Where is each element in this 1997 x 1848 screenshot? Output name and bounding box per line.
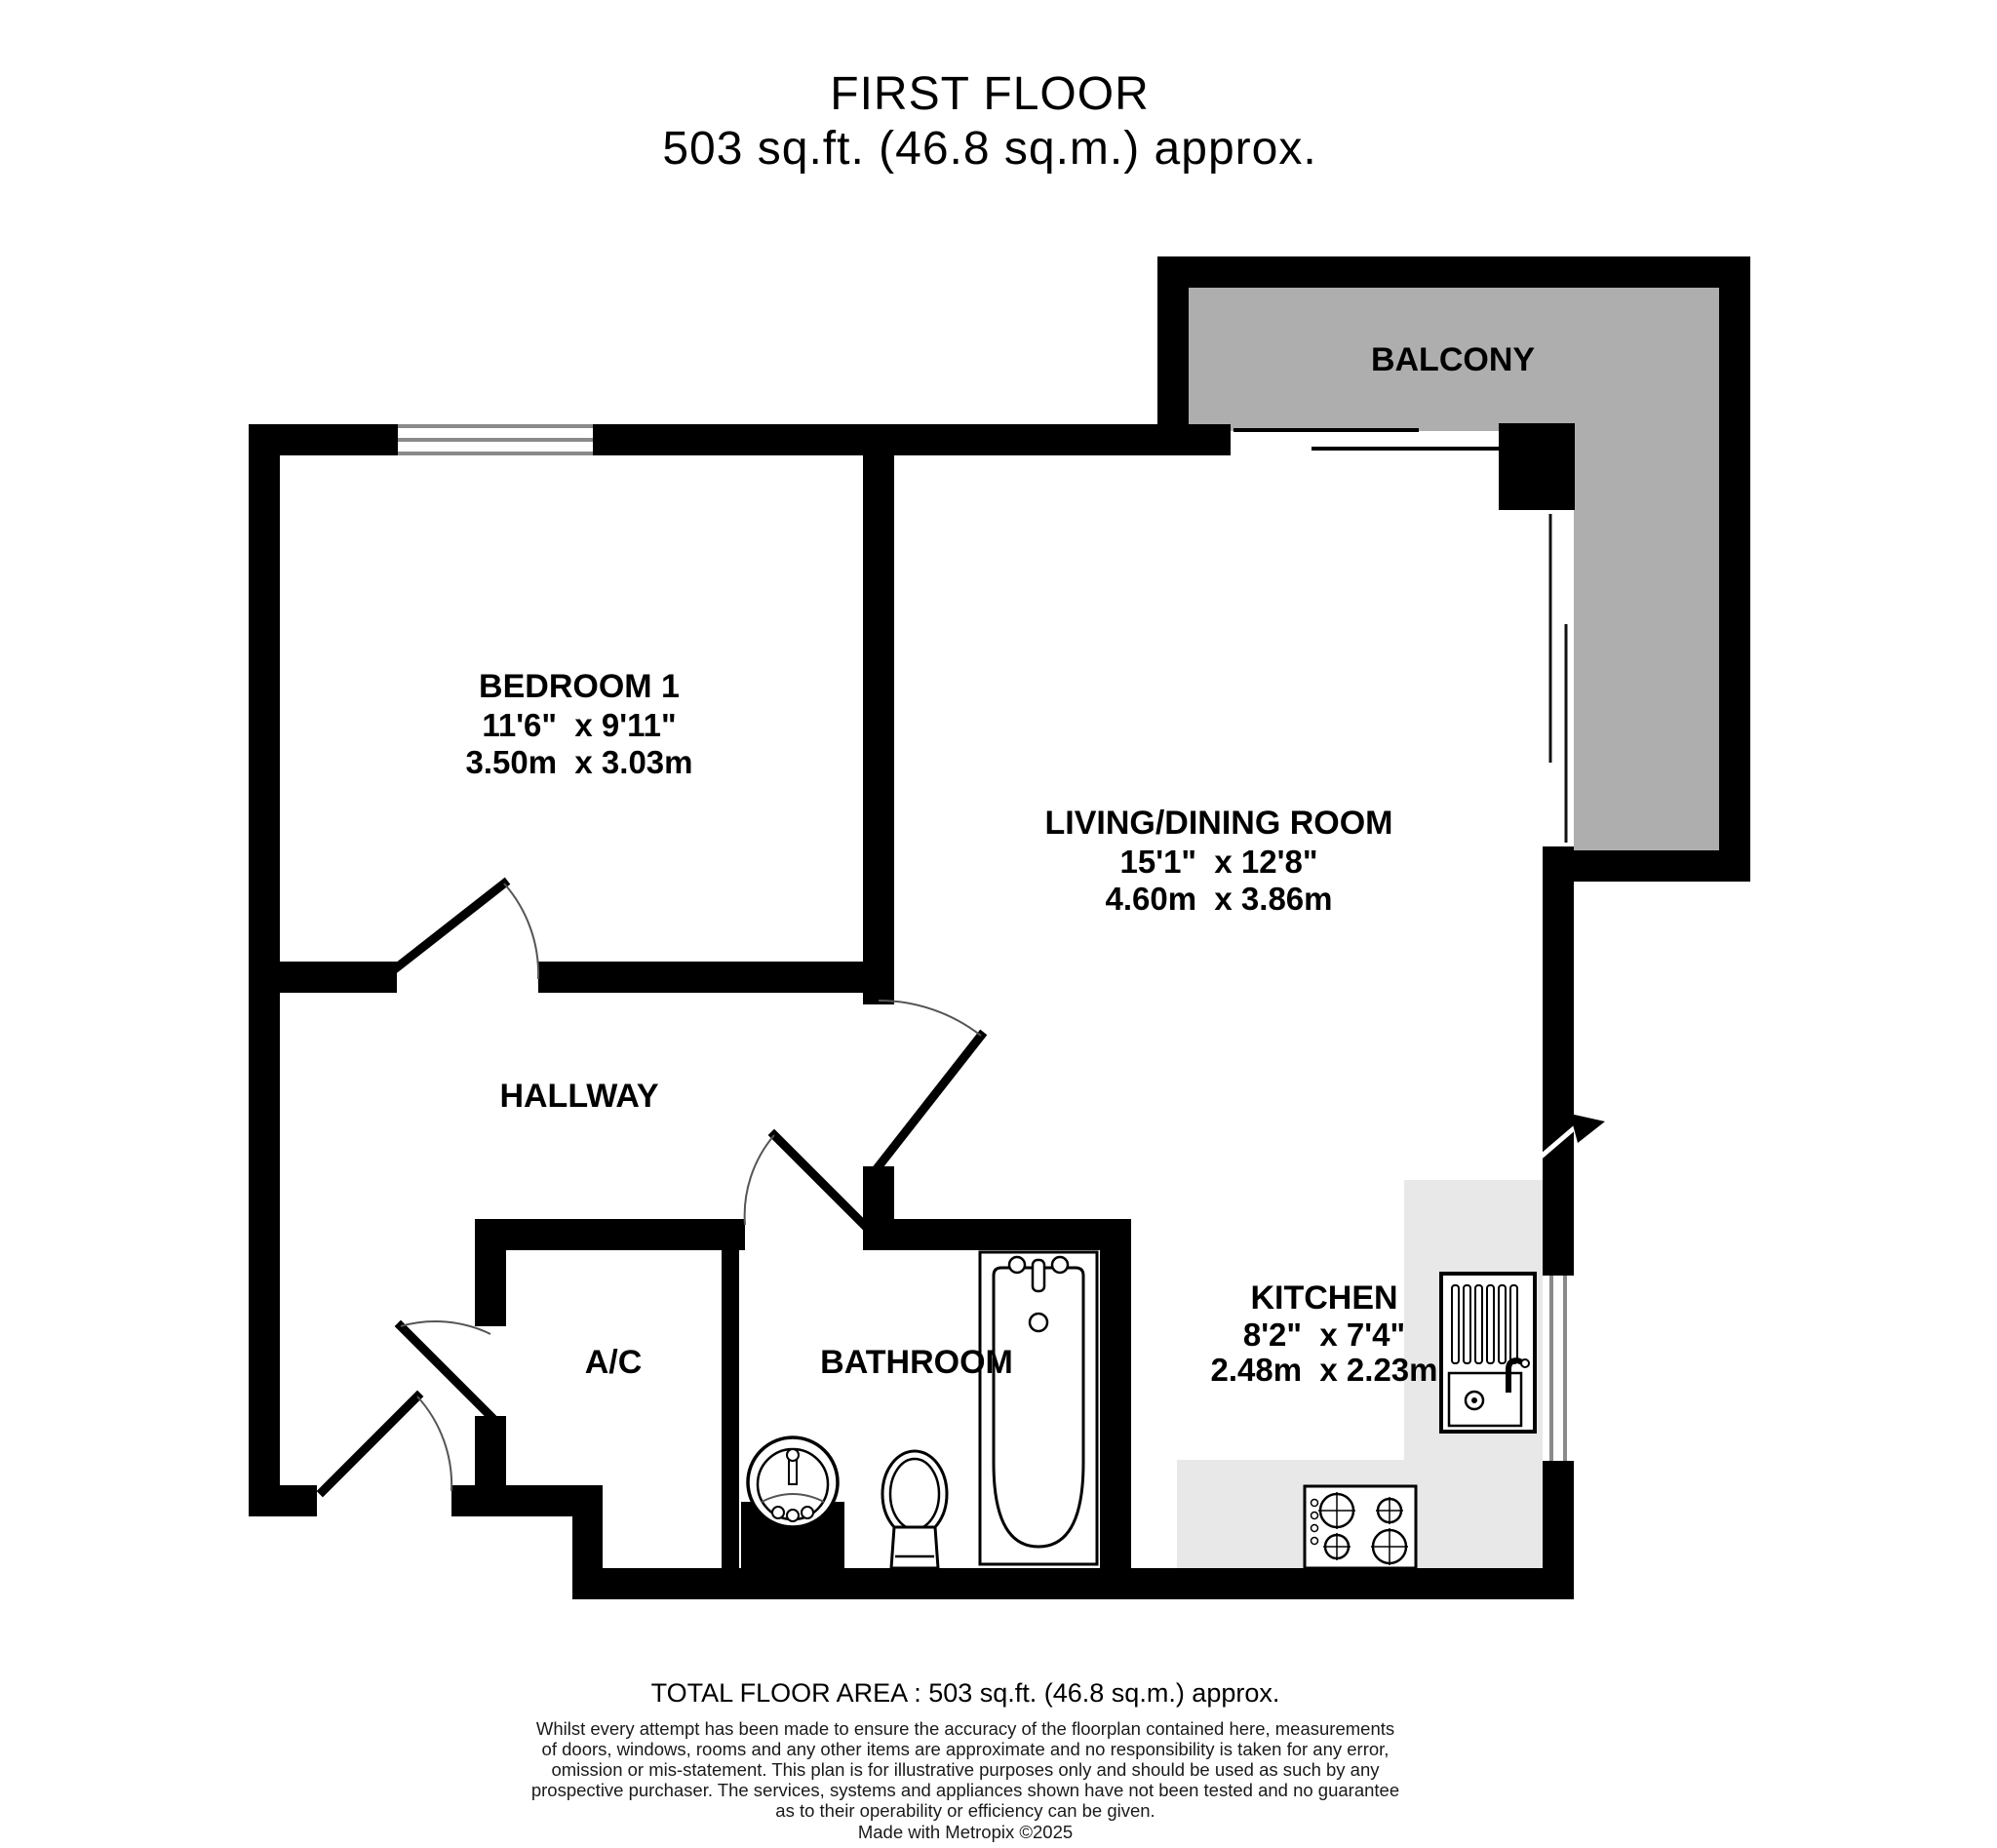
wall-top-left xyxy=(249,424,398,455)
metropix-credit: Made with Metropix ©2025 xyxy=(858,1822,1073,1842)
wall-bathroom-right xyxy=(1100,1219,1131,1568)
bathroom-door-icon xyxy=(745,1135,864,1225)
kitchen-dims-metric: 2.48m x 2.23m xyxy=(1211,1352,1438,1388)
footer: TOTAL FLOOR AREA : 503 sq.ft. (46.8 sq.m… xyxy=(531,1678,1399,1842)
wall-divider xyxy=(863,424,894,1004)
wall-bottom-main xyxy=(572,1568,1574,1599)
disclaimer-line-3: omission or mis-statement. This plan is … xyxy=(551,1759,1380,1780)
balcony-label: BALCONY xyxy=(1371,341,1535,378)
bedroom-window-icon xyxy=(398,424,593,455)
bathroom-label: BATHROOM xyxy=(820,1344,1013,1381)
wall-ac-left xyxy=(475,1250,506,1326)
living-room-dims-imperial: 15'1" x 12'8" xyxy=(1120,844,1318,880)
living-room-label: LIVING/DINING ROOM xyxy=(1045,805,1393,842)
wall-living-balcony-corner xyxy=(1499,423,1575,510)
wall-bottom-left xyxy=(249,1485,317,1516)
wall-bathroom-top xyxy=(870,1219,1131,1250)
floorplan-drawing: FIRST FLOOR 503 sq.ft. (46.8 sq.m.) appr… xyxy=(0,0,1997,1848)
wall-bathroom-left xyxy=(722,1250,739,1568)
disclaimer-line-2: of doors, windows, rooms and any other i… xyxy=(542,1739,1390,1759)
wall-balcony-left xyxy=(1157,256,1189,424)
wall-bedroom-bottom-left xyxy=(249,962,397,993)
wall-ac-left-stub xyxy=(475,1416,506,1485)
living-room-dims-metric: 4.60m x 3.86m xyxy=(1106,881,1333,917)
wall-right-lower xyxy=(1543,1461,1574,1568)
kitchen-window-icon xyxy=(1543,1276,1574,1461)
hallway-label: HALLWAY xyxy=(499,1078,658,1115)
floorplan-page: FIRST FLOOR 503 sq.ft. (46.8 sq.m.) appr… xyxy=(0,0,1997,1848)
kitchen-label: KITCHEN xyxy=(1250,1279,1397,1317)
living-room-door-icon xyxy=(879,1001,981,1166)
bathtub-icon xyxy=(980,1252,1097,1564)
toilet-icon xyxy=(882,1451,947,1568)
bedroom-dims-metric: 3.50m x 3.03m xyxy=(466,744,693,780)
plan-subtitle-area: 503 sq.ft. (46.8 sq.m.) approx. xyxy=(662,123,1316,175)
balcony-glazing-icon xyxy=(1543,510,1574,846)
wall-bedroom-bottom-right xyxy=(538,962,863,993)
disclaimer-line-4: prospective purchaser. The services, sys… xyxy=(531,1780,1399,1800)
ac-label: A/C xyxy=(585,1344,643,1381)
wall-balcony-right xyxy=(1719,256,1750,882)
disclaimer-line-5: as to their operability or efficiency ca… xyxy=(775,1800,1155,1821)
hob-icon xyxy=(1305,1486,1416,1568)
total-floor-area: TOTAL FLOOR AREA : 503 sq.ft. (46.8 sq.m… xyxy=(651,1678,1280,1708)
bedroom-label: BEDROOM 1 xyxy=(479,668,680,705)
bedroom-door-icon xyxy=(397,884,538,979)
disclaimer-line-1: Whilst every attempt has been made to en… xyxy=(536,1718,1394,1739)
kitchen-sink-icon xyxy=(1441,1274,1535,1432)
kitchen-dims-imperial: 8'2" x 7'4" xyxy=(1243,1317,1405,1353)
wall-top-main xyxy=(593,424,1231,455)
plan-title: FIRST FLOOR xyxy=(830,68,1149,120)
wall-right-mid xyxy=(1543,846,1574,1276)
wall-ac-top xyxy=(475,1219,745,1250)
wall-balcony-bottom xyxy=(1574,850,1750,882)
entrance-door-icon xyxy=(323,1396,451,1491)
basin-icon xyxy=(741,1437,844,1568)
wall-balcony-top xyxy=(1160,256,1750,288)
bedroom-dims-imperial: 11'6" x 9'11" xyxy=(482,707,676,743)
